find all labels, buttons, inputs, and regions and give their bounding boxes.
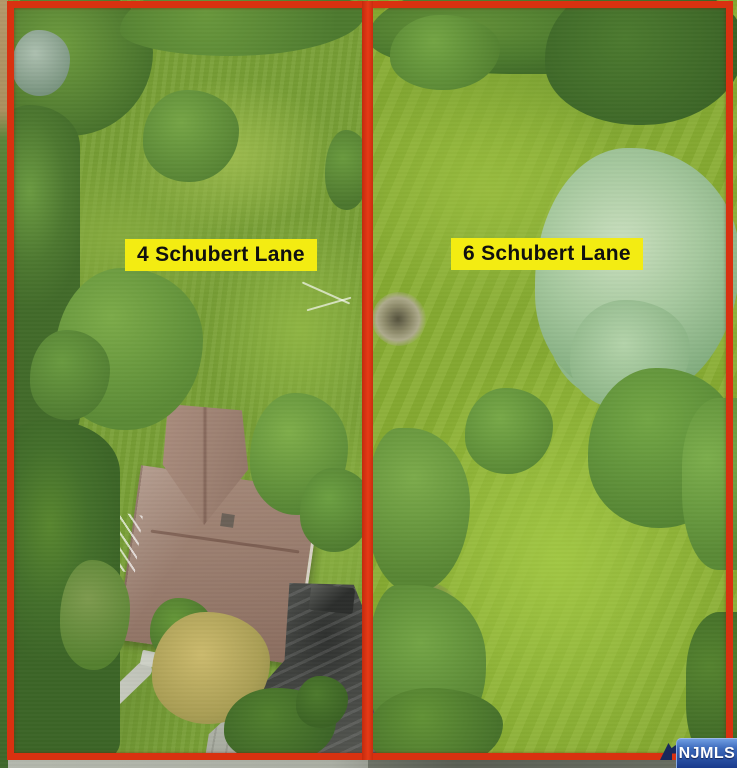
njmls-watermark-text: NJMLS [679,745,736,763]
aerial-photo: 4 Schubert Lane 6 Schubert Lane NJMLS [0,0,737,768]
lot-label-6-schubert: 6 Schubert Lane [451,238,643,270]
lot-label-4-schubert: 4 Schubert Lane [125,239,317,271]
property-boundary-divider [362,1,373,760]
njmls-watermark: NJMLS [676,738,737,768]
